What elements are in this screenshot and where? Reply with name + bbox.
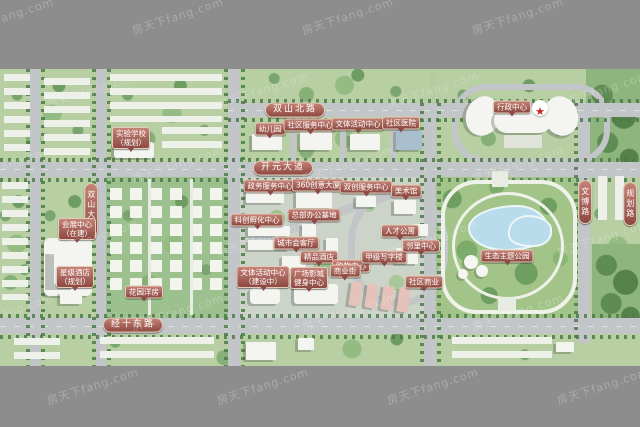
map-label-plaque: 美术馆 <box>391 185 422 198</box>
map-label-plaque: 政务服务中心 <box>244 180 297 193</box>
map-label-plaque: 甲级写字楼 <box>361 251 407 264</box>
map-label-plaque: 城市会客厅 <box>273 237 319 250</box>
map-label-plaque: 社区服务中心 <box>284 119 337 132</box>
map-label-plaque: 广场影城 健身中心 <box>290 267 328 289</box>
watermark-text: 房天下fang.com <box>215 364 311 409</box>
map-label-plaque: 双创服务中心 <box>340 181 393 194</box>
map-label-plaque: 科创孵化中心 <box>231 214 284 227</box>
map-label-plaque: 星级酒店 （规划） <box>56 266 94 288</box>
map-label-plaque: 行政中心 <box>493 101 531 114</box>
map-label-plaque: 人才公寓 <box>381 225 419 238</box>
map-label-plaque: 社区商业 <box>405 276 443 289</box>
watermark-text: 房天下fang.com <box>555 364 640 409</box>
screenshot-stage: ★ <box>0 0 640 427</box>
road-south-label: 经十东路 <box>103 318 163 333</box>
road-far-east-label: 规划路 <box>623 182 637 226</box>
watermark-text: 房天下fang.com <box>130 0 226 38</box>
map-label-plaque: 商业街 <box>330 265 361 278</box>
watermark-text: 房天下fang.com <box>300 0 396 38</box>
masterplan-map: ★ <box>0 69 640 366</box>
road-north-label: 双山北路 <box>265 103 325 118</box>
watermark-text: 房天下fang.com <box>45 364 141 409</box>
map-label-plaque: 文体活动中心 （建设中） <box>237 266 290 288</box>
map-label-plaque: 幼儿园 <box>255 123 286 136</box>
watermark-text: 房天下fang.com <box>470 0 566 38</box>
map-label-plaque: 花园洋房 <box>125 286 163 299</box>
map-label-plaque: 文体活动中心 <box>332 118 385 131</box>
star-icon: ★ <box>535 105 545 118</box>
map-label-plaque: 360创意大厦 <box>292 179 344 192</box>
road-middle-label: 开元大道 <box>253 161 313 176</box>
map-label-plaque: 总部办公基地 <box>288 209 341 222</box>
map-label-plaque: 实验学校 （规划） <box>112 127 150 149</box>
watermark-text: 房天下fang.com <box>385 364 481 409</box>
map-label-plaque: 社区医院 <box>382 117 420 130</box>
watermark-text: 房天下fang.com <box>0 0 56 38</box>
road-east-label: 文博路 <box>578 180 592 224</box>
map-label-plaque: 邻里中心 <box>402 240 440 253</box>
red-star-badge: ★ <box>532 100 548 116</box>
map-label-plaque: 生态主题公园 <box>481 250 534 263</box>
map-label-plaque: 会展中心 （在建） <box>58 218 96 240</box>
